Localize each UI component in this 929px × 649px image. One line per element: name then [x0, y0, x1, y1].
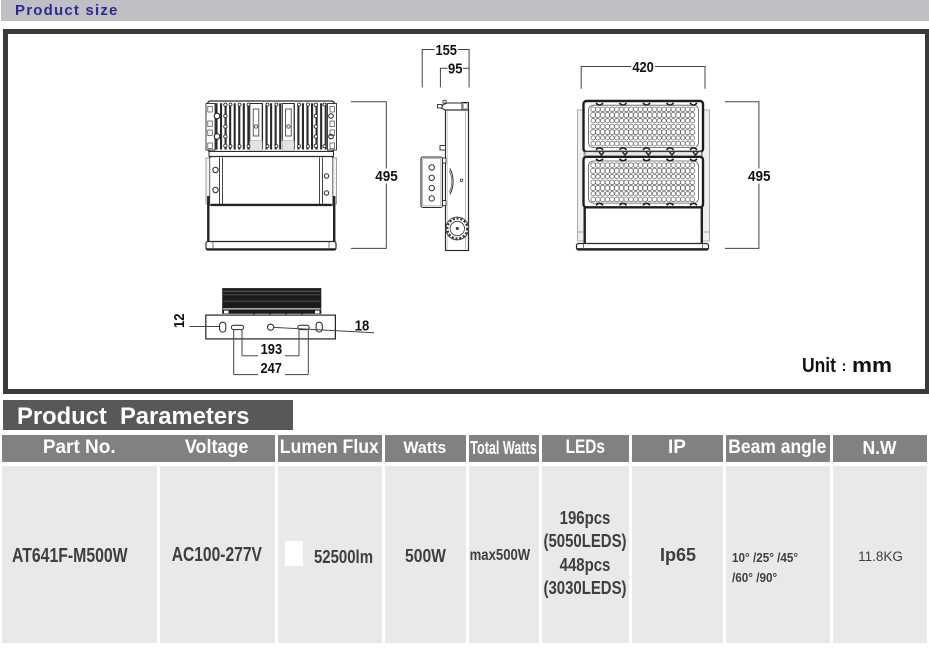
svg-text:18: 18 — [355, 318, 370, 335]
svg-text:495: 495 — [748, 168, 771, 185]
svg-text:mm: mm — [852, 355, 892, 377]
svg-text:193: 193 — [261, 341, 283, 358]
svg-text:420: 420 — [632, 59, 654, 76]
svg-text:247: 247 — [260, 360, 282, 377]
svg-text:Unit: Unit — [802, 355, 836, 377]
svg-text:12: 12 — [171, 314, 188, 329]
svg-text::: : — [842, 358, 847, 375]
